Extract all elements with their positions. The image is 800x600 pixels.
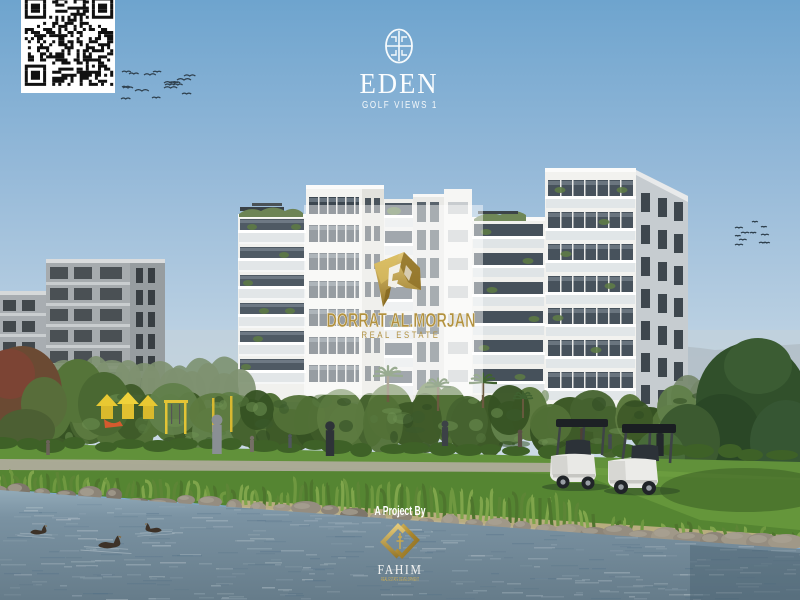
svg-text:A Project By: A Project By	[375, 503, 427, 518]
svg-text:REAL ESTATE: REAL ESTATE	[362, 330, 441, 340]
svg-text:GOLF VIEWS 1: GOLF VIEWS 1	[362, 100, 438, 111]
svg-text:REAL ESTATE DEVELOPMENT: REAL ESTATE DEVELOPMENT	[381, 577, 419, 583]
svg-text:EDEN: EDEN	[360, 69, 439, 100]
svg-text:FAHIM: FAHIM	[378, 563, 423, 578]
svg-text:DORRAT AL.MORJAN: DORRAT AL.MORJAN	[327, 310, 476, 332]
